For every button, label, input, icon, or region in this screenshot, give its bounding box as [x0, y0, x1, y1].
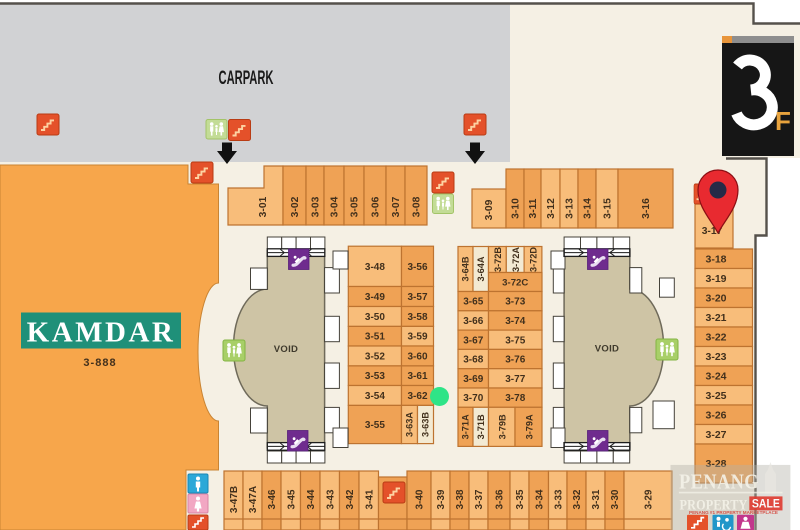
svg-text:3-77: 3-77: [505, 374, 525, 385]
svg-text:3-51: 3-51: [365, 332, 385, 343]
svg-text:3-14: 3-14: [583, 198, 594, 219]
svg-text:3-71A: 3-71A: [461, 414, 471, 439]
svg-text:3-01: 3-01: [258, 196, 269, 217]
svg-text:3-22: 3-22: [705, 331, 726, 343]
svg-text:3-71B: 3-71B: [476, 414, 486, 439]
svg-text:3-54: 3-54: [365, 391, 385, 402]
svg-text:3-04: 3-04: [330, 196, 341, 217]
svg-text:3-15: 3-15: [603, 198, 614, 219]
svg-text:3-13: 3-13: [565, 198, 576, 219]
svg-text:3-74: 3-74: [505, 316, 525, 327]
svg-text:3-05: 3-05: [350, 196, 361, 217]
svg-text:3-50: 3-50: [365, 312, 385, 323]
svg-text:3-65: 3-65: [463, 297, 483, 308]
svg-text:3-76: 3-76: [505, 355, 525, 366]
svg-text:3-35: 3-35: [515, 489, 526, 509]
svg-text:VOID: VOID: [274, 344, 298, 355]
svg-text:3-42: 3-42: [345, 489, 356, 509]
svg-text:3-64A: 3-64A: [476, 256, 486, 281]
svg-text:3-63A: 3-63A: [405, 412, 415, 437]
svg-text:3-30: 3-30: [610, 489, 621, 509]
svg-text:3-08: 3-08: [412, 196, 423, 217]
svg-text:3-53: 3-53: [365, 371, 385, 382]
svg-text:3-24: 3-24: [705, 370, 726, 382]
svg-text:3-79B: 3-79B: [498, 414, 508, 439]
svg-text:3-10: 3-10: [511, 198, 522, 219]
svg-text:3-57: 3-57: [407, 292, 427, 303]
svg-text:3-25: 3-25: [705, 390, 726, 402]
svg-text:3-63B: 3-63B: [421, 412, 431, 437]
svg-text:3-69: 3-69: [463, 374, 483, 385]
svg-text:3-40: 3-40: [415, 489, 426, 509]
svg-text:3-72D: 3-72D: [529, 247, 539, 272]
svg-text:3-38: 3-38: [455, 489, 466, 509]
svg-text:3-33: 3-33: [553, 489, 564, 509]
svg-text:3-72B: 3-72B: [493, 247, 503, 272]
svg-text:3-48: 3-48: [365, 262, 385, 273]
svg-text:3-02: 3-02: [290, 196, 301, 217]
svg-text:3-75: 3-75: [505, 335, 525, 346]
svg-text:3-888: 3-888: [83, 357, 116, 369]
svg-text:PENANG #1 PROPERTY MARKETPLACE: PENANG #1 PROPERTY MARKETPLACE: [689, 510, 778, 515]
svg-text:3-44: 3-44: [306, 489, 317, 509]
svg-text:3-32: 3-32: [572, 489, 583, 509]
svg-text:VOID: VOID: [595, 344, 619, 355]
svg-text:3-64B: 3-64B: [461, 256, 471, 281]
svg-text:3-39: 3-39: [436, 489, 447, 509]
svg-text:3-27: 3-27: [705, 429, 726, 441]
svg-text:3-61: 3-61: [407, 371, 427, 382]
svg-text:3-70: 3-70: [463, 393, 483, 404]
svg-text:3-26: 3-26: [705, 409, 726, 421]
svg-text:3-36: 3-36: [495, 489, 506, 509]
svg-text:CARPARK: CARPARK: [219, 68, 274, 89]
svg-text:3-52: 3-52: [365, 351, 385, 362]
svg-text:3-23: 3-23: [705, 351, 726, 363]
svg-text:3-18: 3-18: [705, 253, 726, 265]
svg-text:3-34: 3-34: [534, 489, 545, 509]
svg-text:F: F: [775, 106, 791, 136]
svg-text:3-12: 3-12: [546, 198, 557, 219]
svg-text:3-66: 3-66: [463, 316, 483, 327]
svg-text:3-06: 3-06: [371, 196, 382, 217]
svg-text:3-45: 3-45: [286, 489, 297, 509]
svg-text:3-47A: 3-47A: [248, 486, 259, 513]
svg-text:3-11: 3-11: [528, 198, 539, 218]
svg-text:3-72C: 3-72C: [502, 277, 528, 288]
svg-text:3-16: 3-16: [641, 198, 652, 219]
svg-text:PENANG: PENANG: [679, 470, 759, 494]
svg-text:3-60: 3-60: [407, 351, 427, 362]
svg-text:3-62: 3-62: [407, 391, 427, 402]
svg-text:KAMDAR: KAMDAR: [27, 317, 176, 349]
svg-text:3-09: 3-09: [484, 199, 495, 220]
svg-text:3-72A: 3-72A: [511, 247, 521, 272]
svg-text:3-49: 3-49: [365, 292, 385, 303]
svg-text:SALE: SALE: [752, 497, 780, 511]
svg-text:3-20: 3-20: [705, 292, 726, 304]
svg-text:3-73: 3-73: [505, 297, 525, 308]
svg-text:3-29: 3-29: [644, 489, 655, 509]
svg-text:3-47B: 3-47B: [229, 486, 240, 513]
svg-text:3-79A: 3-79A: [525, 414, 535, 439]
svg-text:3-55: 3-55: [365, 420, 385, 431]
svg-text:3-07: 3-07: [391, 196, 402, 217]
svg-text:3-58: 3-58: [407, 312, 427, 323]
svg-text:3-19: 3-19: [705, 273, 726, 285]
svg-text:3-46: 3-46: [267, 489, 278, 509]
svg-text:3-67: 3-67: [463, 335, 483, 346]
svg-text:3-43: 3-43: [325, 489, 336, 509]
svg-text:3-56: 3-56: [407, 262, 427, 273]
svg-text:3-37: 3-37: [474, 489, 485, 509]
svg-text:3-41: 3-41: [364, 489, 375, 509]
svg-text:3-21: 3-21: [705, 312, 726, 324]
svg-text:3-78: 3-78: [505, 393, 525, 404]
svg-text:3-03: 3-03: [311, 196, 322, 217]
svg-text:3-59: 3-59: [407, 332, 427, 343]
svg-text:3-68: 3-68: [463, 355, 483, 366]
svg-text:3-31: 3-31: [591, 489, 602, 509]
